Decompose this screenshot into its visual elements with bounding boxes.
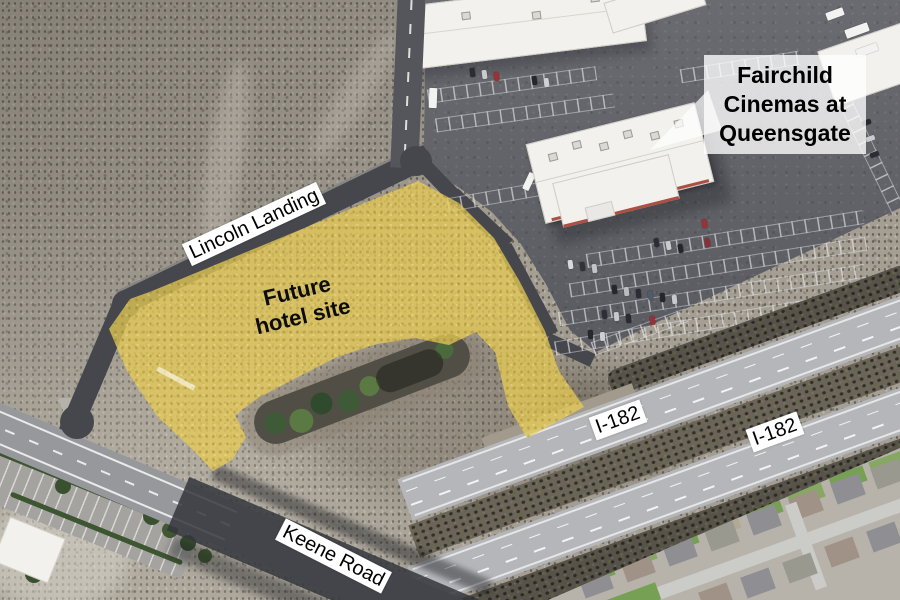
road-junction [60,405,94,439]
callout-fairchild-cinemas: Fairchild Cinemas at Queensgate [704,55,866,154]
car [612,285,618,294]
house-roof [740,568,776,599]
car [602,310,608,319]
car [481,70,487,80]
callout-line1: Fairchild [706,61,864,90]
rooftop-unit [590,0,600,3]
car [493,72,499,82]
house-roof [824,537,860,568]
car [600,332,606,341]
car [591,264,597,274]
aerial-map: Lincoln Landing Future hotel site Keene … [0,0,900,600]
callout-line2: Cinemas at [706,90,864,119]
car [588,330,594,339]
truck [429,88,438,108]
car [531,76,537,86]
car [636,289,642,298]
rooftop-unit [650,131,661,141]
rooftop-unit [673,119,684,129]
car [626,314,632,323]
pond-tree [261,409,289,437]
rooftop-unit [572,140,583,150]
car [624,287,630,296]
house-roof [866,522,900,553]
lane-dash-line [403,0,412,164]
car [469,68,475,78]
rooftop-unit [599,141,610,151]
car [660,293,666,302]
rooftop-unit [532,11,542,20]
rooftop-unit [461,11,471,20]
car [672,295,678,304]
road-junction [400,146,432,176]
car [543,78,549,88]
pond-tree [334,387,362,415]
car [579,262,585,272]
rooftop-unit [622,129,633,139]
callout-line3: Queensgate [706,119,864,148]
house-roof [698,583,734,600]
rooftop-unit [548,152,559,162]
car [614,312,620,321]
car [650,316,656,325]
car [648,291,654,300]
car [567,260,573,270]
